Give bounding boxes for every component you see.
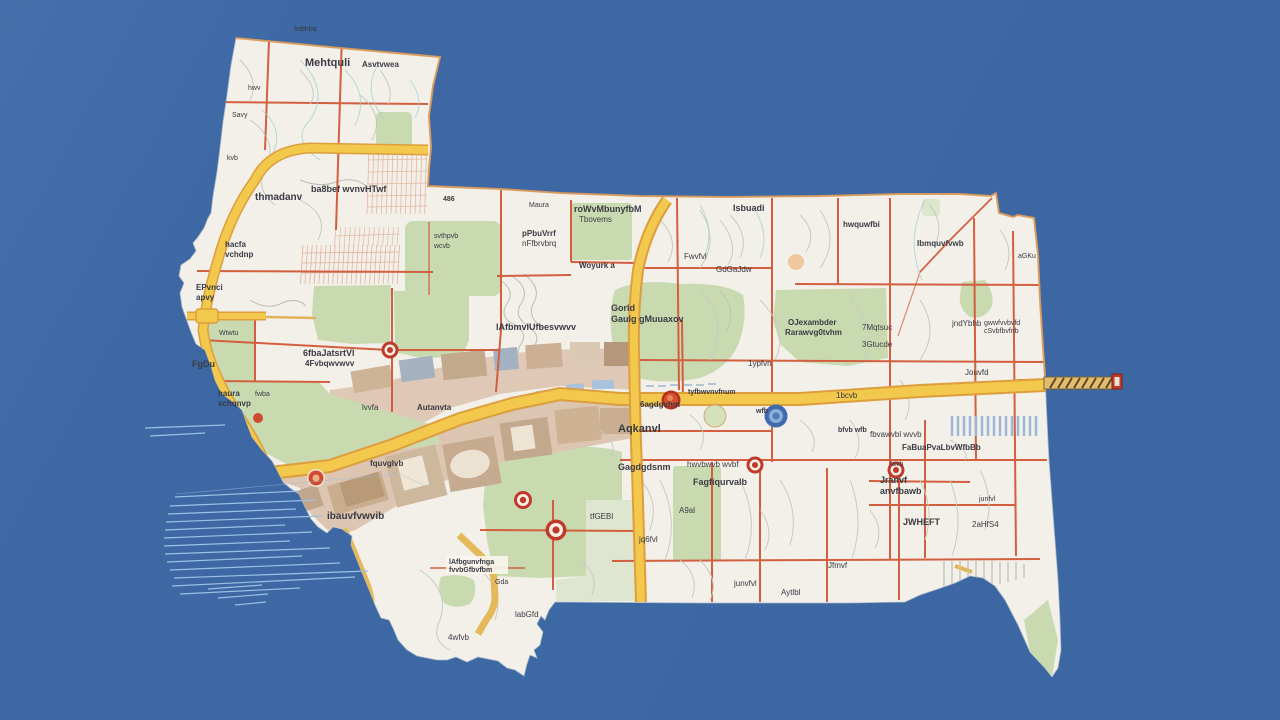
svg-text:EPvnci: EPvnci xyxy=(196,283,223,292)
svg-text:lAfbmvlUfbesvwvv: lAfbmvlUfbesvwvv xyxy=(496,322,576,332)
svg-text:4Fvbqwvwvv: 4Fvbqwvwvv xyxy=(305,359,355,368)
svg-text:labGfd: labGfd xyxy=(515,610,539,619)
svg-text:tfGEBl: tfGEBl xyxy=(590,512,613,521)
svg-text:fvvbGfbvfbm: fvvbGfbvfbm xyxy=(449,567,492,574)
svg-text:junvfvl: junvfvl xyxy=(733,579,757,588)
svg-text:favb: favb xyxy=(890,461,903,468)
svg-text:tyfbwvnvfnum: tyfbwvnvfnum xyxy=(688,389,735,396)
svg-text:jq6fvl: jq6fvl xyxy=(638,535,658,544)
svg-text:486: 486 xyxy=(443,196,455,203)
svg-text:Ibmquvfvwb: Ibmquvfvwb xyxy=(917,239,964,248)
svg-text:pPbuVrrf: pPbuVrrf xyxy=(522,229,556,238)
svg-text:6fbaJatsrtVl: 6fbaJatsrtVl xyxy=(303,348,355,358)
svg-text:haura: haura xyxy=(218,389,240,398)
svg-text:Isbuadi: Isbuadi xyxy=(733,203,765,213)
svg-text:Rarawvg0tvhm: Rarawvg0tvhm xyxy=(785,328,842,337)
svg-text:Jranvf: Jranvf xyxy=(880,475,908,485)
svg-text:hacfa: hacfa xyxy=(225,240,246,249)
svg-text:OJexambder: OJexambder xyxy=(788,318,836,327)
svg-text:Fagfiqurvalb: Fagfiqurvalb xyxy=(693,477,748,487)
svg-text:Savy: Savy xyxy=(232,112,248,119)
svg-text:Aqkanvl: Aqkanvl xyxy=(618,423,661,435)
svg-text:Gda: Gda xyxy=(495,579,508,586)
svg-text:Mehtquli: Mehtquli xyxy=(305,57,350,69)
svg-text:1bcvb: 1bcvb xyxy=(836,391,858,400)
svg-text:Autanvta: Autanvta xyxy=(417,403,452,412)
svg-text:thmadanv: thmadanv xyxy=(255,192,303,203)
svg-text:Aytlbl: Aytlbl xyxy=(781,588,801,597)
svg-text:lvvfa: lvvfa xyxy=(362,403,379,412)
svg-text:fwbhbq: fwbhbq xyxy=(294,26,317,33)
svg-text:hwvbwvb wvbf: hwvbwvb wvbf xyxy=(687,460,739,469)
svg-text:fquvglvb: fquvglvb xyxy=(370,459,403,468)
svg-text:FgDu: FgDu xyxy=(192,359,215,369)
svg-text:gwwfvvbvfd: gwwfvvbvfd xyxy=(984,320,1020,327)
svg-text:6agdgvhm: 6agdgvhm xyxy=(640,400,680,409)
svg-text:Gaulg gMuuaxov: Gaulg gMuuaxov xyxy=(611,314,684,324)
svg-text:apvy: apvy xyxy=(196,293,215,302)
svg-text:jndYbhb: jndYbhb xyxy=(951,319,982,328)
svg-text:hwquwfbi: hwquwfbi xyxy=(843,220,880,229)
svg-text:lAfbgunvfnga: lAfbgunvfnga xyxy=(449,559,494,566)
svg-text:kvb: kvb xyxy=(227,155,238,162)
svg-text:fwba: fwba xyxy=(255,391,270,398)
svg-text:Gorld: Gorld xyxy=(611,303,635,313)
svg-text:7Mqtsuc: 7Mqtsuc xyxy=(862,323,892,332)
svg-text:bfvb wfb: bfvb wfb xyxy=(838,427,867,434)
svg-text:1ypfvn: 1ypfvn xyxy=(748,359,772,368)
svg-text:Gagdgdsnm: Gagdgdsnm xyxy=(618,462,671,472)
svg-text:Woyurk a: Woyurk a xyxy=(579,261,615,270)
svg-text:vchdnp: vchdnp xyxy=(225,250,254,259)
svg-text:2aHfS4: 2aHfS4 xyxy=(972,520,999,529)
svg-text:anvfbawb: anvfbawb xyxy=(880,486,922,496)
svg-text:wcvb: wcvb xyxy=(433,243,450,250)
svg-text:junfvl: junfvl xyxy=(978,496,996,503)
svg-text:4wfvb: 4wfvb xyxy=(448,633,469,642)
svg-text:Fwvfvl: Fwvfvl xyxy=(684,252,707,261)
svg-text:aGKu: aGKu xyxy=(1018,253,1036,260)
svg-text:Tbovems: Tbovems xyxy=(579,215,612,224)
svg-text:wfb: wfb xyxy=(755,408,768,415)
svg-text:FaBuaPvaLbvWfbBb: FaBuaPvaLbvWfbBb xyxy=(902,443,981,452)
svg-text:Jouvfd: Jouvfd xyxy=(965,368,989,377)
svg-text:Jfmvf: Jfmvf xyxy=(828,561,848,570)
svg-text:Maura: Maura xyxy=(529,202,549,209)
svg-text:xchqnvp: xchqnvp xyxy=(218,399,251,408)
svg-text:A9al: A9al xyxy=(679,506,695,515)
svg-text:GdGaJdw: GdGaJdw xyxy=(716,265,752,274)
svg-text:cSvbfbvfnb: cSvbfbvfnb xyxy=(984,328,1019,335)
svg-text:roWvMbunyfbM: roWvMbunyfbM xyxy=(574,204,642,214)
svg-text:svthpvb: svthpvb xyxy=(434,233,458,240)
svg-text:ba8bef wvnvHTwf: ba8bef wvnvHTwf xyxy=(311,184,387,194)
svg-text:Asvtvwea: Asvtvwea xyxy=(362,60,399,69)
svg-text:fbvawvbl wvvb: fbvawvbl wvvb xyxy=(870,430,922,439)
svg-text:hwv: hwv xyxy=(248,85,261,92)
svg-text:Wtwtu: Wtwtu xyxy=(219,330,239,337)
svg-text:JWHEFT: JWHEFT xyxy=(903,517,941,527)
svg-text:ibauvfvwvib: ibauvfvwvib xyxy=(327,511,384,522)
svg-text:3Gtucde: 3Gtucde xyxy=(862,340,893,349)
svg-text:nFfbrvbrq: nFfbrvbrq xyxy=(522,239,556,248)
